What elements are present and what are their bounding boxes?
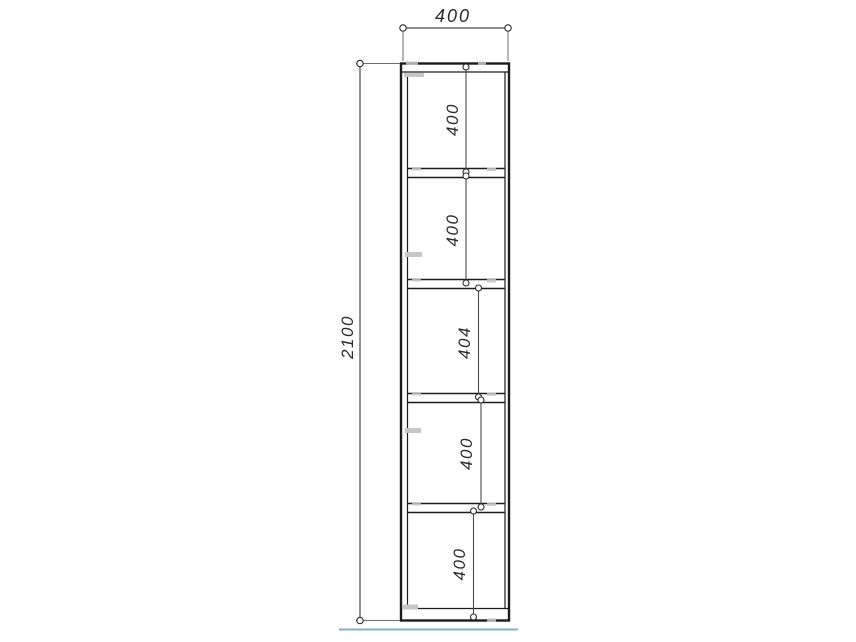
dowel-mark — [487, 503, 496, 507]
dowel-mark — [478, 62, 486, 66]
dim-label-compartment-3: 404 — [455, 326, 474, 359]
dim-label-compartment-5: 400 — [450, 548, 469, 581]
dowel-mark — [412, 278, 421, 282]
dim-endpoint-circle — [357, 60, 363, 66]
dim-label-compartment-1: 400 — [443, 103, 462, 136]
dowel-mark — [412, 392, 421, 396]
dim-label-width: 400 — [435, 6, 471, 26]
dowel-mark — [412, 167, 421, 171]
dim-endpoint-circle — [463, 64, 469, 70]
dim-endpoint-circle — [463, 280, 469, 286]
dowel-mark — [487, 619, 496, 623]
dim-endpoint-circle — [476, 285, 482, 291]
dim-label-total-height: 2100 — [338, 315, 357, 360]
dim-label-compartment-4: 400 — [457, 437, 476, 470]
dowel-mark — [487, 168, 496, 172]
fitting-mark — [405, 252, 422, 257]
dim-endpoint-circle — [471, 508, 477, 514]
drawing-canvas: 400 2100 400 400 404 400 — [0, 0, 856, 642]
dim-label-compartment-2: 400 — [443, 214, 462, 247]
dim-endpoint-circle — [471, 614, 477, 620]
dowel-mark — [406, 62, 418, 66]
dim-endpoint-circle — [478, 504, 484, 510]
fitting-mark — [402, 605, 418, 610]
dimension-compartment-4: 400 — [457, 397, 484, 510]
dim-endpoint-circle — [463, 173, 469, 179]
dim-endpoint-circle — [505, 25, 511, 31]
dim-endpoint-circle — [357, 617, 363, 623]
fitting-mark — [404, 73, 424, 78]
fitting-marks — [402, 62, 496, 623]
dowel-mark — [487, 279, 496, 283]
dimension-total-height: 2100 — [338, 60, 400, 623]
dowel-mark — [487, 393, 496, 397]
technical-drawing: 400 2100 400 400 404 400 — [0, 0, 856, 642]
dowel-mark — [412, 502, 421, 506]
dimension-compartment-5: 400 — [450, 508, 477, 620]
fitting-mark — [405, 428, 421, 433]
dimension-compartment-2: 400 — [443, 173, 469, 286]
dimension-compartment-3: 404 — [455, 285, 482, 400]
dim-endpoint-circle — [400, 25, 406, 31]
dimension-compartment-1: 400 — [443, 64, 469, 175]
dim-endpoint-circle — [478, 397, 484, 403]
dimension-width: 400 — [400, 6, 511, 61]
